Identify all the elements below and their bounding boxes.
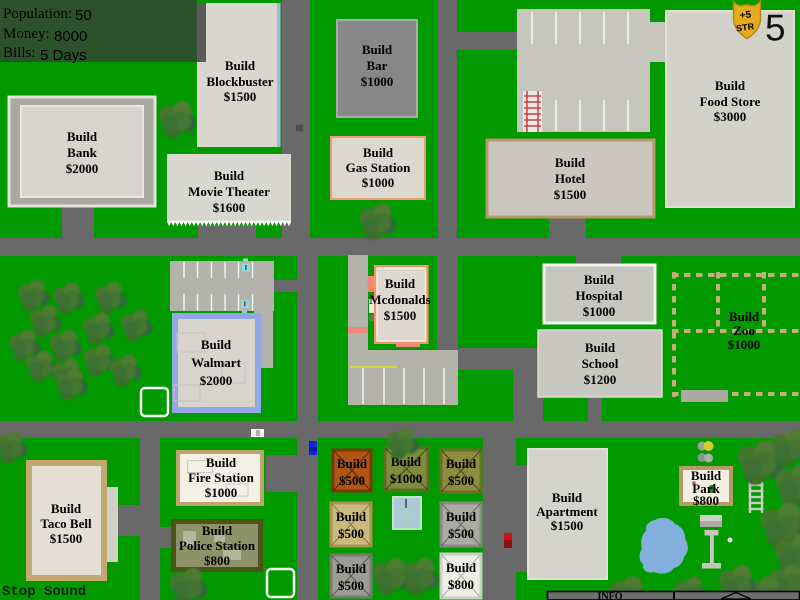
svg-text:$500: $500 (338, 526, 364, 541)
svg-text:$500: $500 (338, 578, 364, 593)
svg-text:Gas Station: Gas Station (346, 160, 411, 175)
svg-text:Build: Build (555, 155, 586, 170)
svg-text:$1000: $1000 (362, 175, 395, 190)
svg-text:$1000: $1000 (390, 471, 423, 486)
svg-text:INFO: INFO (598, 592, 623, 600)
svg-text:Build: Build (201, 337, 232, 352)
svg-text:$800: $800 (204, 553, 230, 568)
svg-text:$1500: $1500 (551, 518, 584, 533)
svg-text:$1500: $1500 (554, 187, 587, 202)
svg-text:Stop: Stop (2, 584, 36, 600)
svg-text:8000: 8000 (54, 28, 87, 45)
svg-text:50: 50 (75, 7, 92, 24)
svg-text:$1500: $1500 (384, 308, 417, 323)
svg-text:Build: Build (67, 129, 98, 144)
svg-text:Build: Build (585, 340, 616, 355)
svg-text:$1000: $1000 (728, 337, 761, 352)
svg-text:5: 5 (765, 8, 786, 49)
svg-text:Mcdonalds: Mcdonalds (369, 292, 430, 307)
svg-text:$2000: $2000 (66, 161, 99, 176)
svg-text:$3000: $3000 (714, 109, 747, 124)
svg-text:Build: Build (362, 42, 393, 57)
svg-text:Build: Build (715, 78, 746, 93)
svg-text:Build: Build (51, 501, 82, 516)
svg-text:Build: Build (446, 560, 477, 575)
svg-text:School: School (582, 356, 619, 371)
svg-text:5 Days: 5 Days (40, 47, 87, 64)
svg-text:Build: Build (206, 455, 237, 470)
svg-text:Hospital: Hospital (576, 288, 623, 303)
svg-text:$800: $800 (693, 493, 719, 508)
svg-text:$1200: $1200 (584, 372, 617, 387)
svg-text:Food Store: Food Store (700, 94, 761, 109)
svg-text:Apartment: Apartment (536, 504, 598, 519)
svg-text:Build: Build (552, 490, 583, 505)
svg-text:Fire Station: Fire Station (188, 470, 255, 485)
svg-text:$1500: $1500 (224, 89, 257, 104)
svg-text:Build: Build (225, 58, 256, 73)
svg-text:Build: Build (202, 523, 233, 538)
svg-text:Population:: Population: (3, 6, 72, 22)
svg-text:$1600: $1600 (213, 200, 246, 215)
svg-text:Build: Build (584, 272, 615, 287)
svg-text:Build: Build (214, 168, 245, 183)
svg-text:$500: $500 (448, 526, 474, 541)
svg-text:$1500: $1500 (50, 531, 83, 546)
svg-text:Hotel: Hotel (555, 171, 586, 186)
svg-text:Build: Build (336, 561, 367, 576)
svg-text:Build: Build (446, 509, 477, 524)
svg-text:Zoo: Zoo (733, 323, 755, 338)
svg-text:$2000: $2000 (200, 373, 233, 388)
svg-text:Walmart: Walmart (191, 355, 241, 370)
svg-text:Build: Build (337, 456, 368, 471)
svg-text:Blockbuster: Blockbuster (206, 74, 273, 89)
svg-text:$1000: $1000 (583, 304, 616, 319)
svg-text:Bar: Bar (367, 58, 388, 73)
svg-text:$500: $500 (339, 473, 365, 488)
svg-text:$1000: $1000 (361, 74, 394, 89)
svg-text:$500: $500 (448, 473, 474, 488)
svg-text:Taco Bell: Taco Bell (40, 516, 92, 531)
svg-text:Bank: Bank (67, 145, 97, 160)
svg-text:Bills:: Bills: (3, 45, 36, 61)
svg-text:$1000: $1000 (205, 485, 238, 500)
svg-text:+5: +5 (739, 9, 752, 21)
svg-text:Sound: Sound (44, 584, 86, 600)
svg-text:Build: Build (385, 276, 416, 291)
svg-text:Money:: Money: (3, 26, 50, 42)
svg-text:Build: Build (363, 145, 394, 160)
svg-text:Build: Build (446, 456, 477, 471)
svg-text:Build: Build (729, 309, 760, 324)
svg-text:Movie Theater: Movie Theater (188, 184, 270, 199)
svg-text:Police Station: Police Station (179, 538, 256, 553)
svg-text:$800: $800 (448, 577, 474, 592)
svg-text:Build: Build (336, 509, 367, 524)
